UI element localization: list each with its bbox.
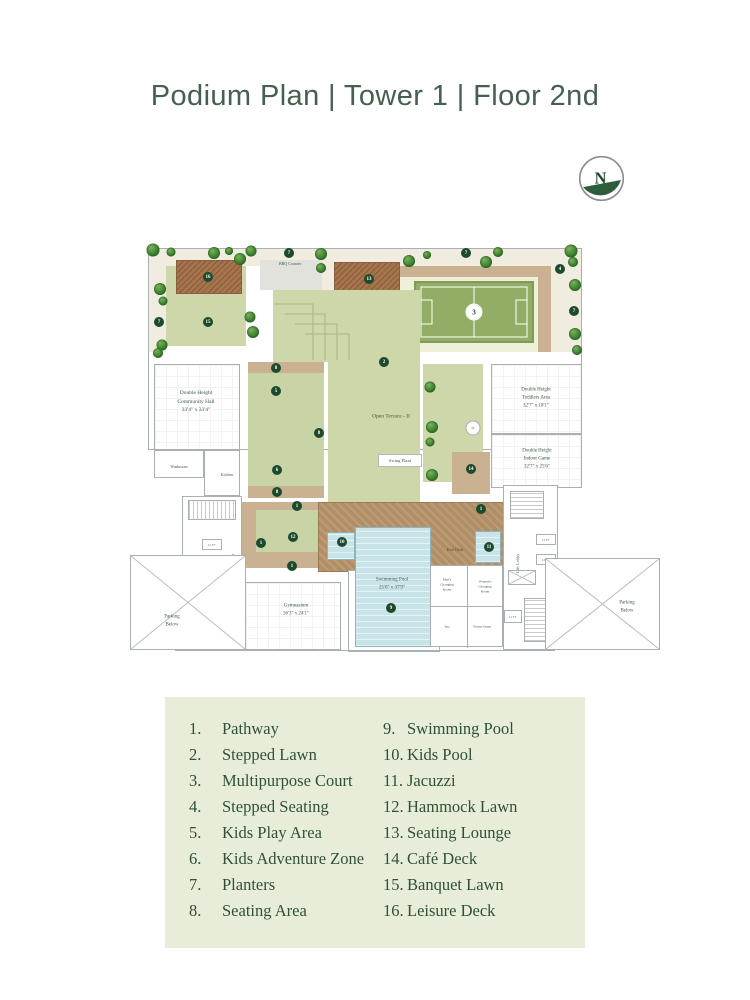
- legend-num: 8.: [189, 901, 213, 921]
- legend-item: 9.Swimming Pool: [383, 716, 517, 742]
- legend-label: Jacuzzi: [407, 771, 456, 791]
- tree-icon: [426, 469, 438, 481]
- tree-icon: [403, 255, 415, 267]
- tree-icon: [480, 256, 492, 268]
- label-open-terrace: Open Terrace - II: [372, 413, 410, 422]
- tree-icon: [569, 328, 581, 340]
- marker-jacuzzi: 11: [484, 542, 494, 552]
- label-indoor-game: Double Height Indoor Game 32'7" x 25'6": [522, 447, 552, 470]
- zone-seating-band-top: [248, 362, 324, 373]
- zone-stepped-seating-right: [538, 266, 551, 352]
- legend-item: 5.Kids Play Area: [189, 820, 364, 846]
- marker-seating-area-1: 8: [271, 363, 281, 373]
- legend-num: 9.: [383, 719, 404, 739]
- label-mens-changing: Men's Changing Room: [440, 578, 454, 593]
- parking-left: [130, 555, 246, 650]
- page: Podium Plan | Tower 1 | Floor 2nd N: [0, 0, 750, 1000]
- zone-stepped-seating-top: [400, 266, 551, 277]
- legend-num: 13.: [383, 823, 404, 843]
- legend-item: 3.Multipurpose Court: [189, 768, 364, 794]
- marker-kids-pool: 10: [337, 537, 347, 547]
- north-letter: N: [595, 169, 607, 188]
- building-bottom-wall: [175, 650, 555, 651]
- label-pool-deck: Pool Deck: [447, 547, 464, 553]
- marker-cafe-deck: 14: [466, 464, 476, 474]
- swing-icon: [466, 421, 481, 436]
- legend-label: Planters: [222, 875, 275, 895]
- tree-icon: [425, 382, 436, 393]
- legend-item: 13.Seating Lounge: [383, 820, 517, 846]
- marker-seating-area-3: 8: [272, 487, 282, 497]
- tree-icon: [565, 245, 578, 258]
- tree-icon: [159, 297, 168, 306]
- legend-num: 14.: [383, 849, 404, 869]
- label-gymnasium: Gymnasium 36'3" x 24'1": [283, 602, 309, 618]
- tree-icon: [423, 251, 431, 259]
- floor-plan: LIFT LIFT Lift Lobby LIFT LIFT LIFT Lift…: [130, 240, 662, 665]
- zone-seating-band-bottom: [248, 486, 324, 498]
- tree-icon: [572, 345, 582, 355]
- label-swimming-pool: Swimming Pool 25'0" x 37'9": [376, 576, 408, 592]
- tree-icon: [234, 253, 246, 265]
- legend-num: 10.: [383, 745, 404, 765]
- stepped-lawn-steps: [273, 290, 420, 362]
- legend-num: 15.: [383, 875, 404, 895]
- legend-num: 1.: [189, 719, 213, 739]
- lift-right-3: LIFT: [504, 610, 522, 623]
- tree-icon: [315, 248, 327, 260]
- legend-label: Seating Area: [222, 901, 307, 921]
- label-steam-sauna: Steam Sauna: [473, 625, 491, 630]
- swing-plaza-label: Swing Plaza: [378, 454, 422, 467]
- label-parking-right: Parking Below: [619, 599, 635, 615]
- marker-pathway-3: 1: [287, 561, 297, 571]
- legend-panel: 1.Pathway 2.Stepped Lawn 3.Multipurpose …: [165, 697, 585, 948]
- legend-item: 16.Leisure Deck: [383, 898, 517, 924]
- label-toddlers-area: Double Height Toddlers Area 32'7" x 18'1…: [521, 386, 551, 409]
- label-washroom: Washroom: [170, 464, 187, 470]
- marker-kids-adventure: 6: [272, 465, 282, 475]
- legend-num: 4.: [189, 797, 213, 817]
- legend-num: 11.: [383, 771, 404, 791]
- legend-num: 3.: [189, 771, 213, 791]
- legend-num: 6.: [189, 849, 213, 869]
- marker-banquet-lawn: 15: [203, 317, 213, 327]
- tree-icon: [147, 244, 160, 257]
- tree-icon: [426, 421, 438, 433]
- legend-label: Seating Lounge: [407, 823, 511, 843]
- legend-column-2: 9.Swimming Pool 10.Kids Pool 11.Jacuzzi …: [383, 716, 517, 924]
- tree-icon: [225, 247, 233, 255]
- tree-icon: [208, 247, 220, 259]
- tree-icon: [426, 438, 435, 447]
- tree-icon: [247, 326, 259, 338]
- legend-item: 7.Planters: [189, 872, 364, 898]
- tree-icon: [153, 348, 163, 358]
- tree-icon: [493, 247, 503, 257]
- legend-item: 15.Banquet Lawn: [383, 872, 517, 898]
- legend-item: 1.Pathway: [189, 716, 364, 742]
- legend-label: Leisure Deck: [407, 901, 495, 921]
- page-title: Podium Plan | Tower 1 | Floor 2nd: [0, 80, 750, 113]
- legend-label: Stepped Lawn: [222, 745, 317, 765]
- tree-icon: [316, 263, 326, 273]
- legend-label: Kids Pool: [407, 745, 473, 765]
- stairs-right-top: [510, 491, 544, 519]
- marker-seating-lounge: 13: [364, 274, 374, 284]
- stairs-left-top: [188, 500, 236, 520]
- label-bbq-counter: BBQ Counter: [279, 261, 301, 267]
- label-spa: Spa: [444, 625, 449, 630]
- marker-seating-area-2: 8: [314, 428, 324, 438]
- lift-left-1: LIFT: [202, 539, 222, 550]
- marker-planters-left: 7: [154, 317, 164, 327]
- legend-num: 7.: [189, 875, 213, 895]
- label-parking-left: Parking Below: [164, 613, 180, 629]
- marker-pathway-4: 1: [476, 504, 486, 514]
- legend-label: Stepped Seating: [222, 797, 329, 817]
- legend-label: Hammock Lawn: [407, 797, 517, 817]
- tree-icon: [245, 312, 256, 323]
- tree-icon: [167, 248, 176, 257]
- legend-item: 2.Stepped Lawn: [189, 742, 364, 768]
- zone-hammock-lawn: [256, 510, 318, 552]
- tree-icon: [154, 283, 166, 295]
- legend-label: Café Deck: [407, 849, 477, 869]
- legend-label: Banquet Lawn: [407, 875, 504, 895]
- legend-label: Kids Adventure Zone: [222, 849, 364, 869]
- zone-stepped-lawn-lower: [328, 360, 420, 512]
- legend-num: 12.: [383, 797, 404, 817]
- lift-right-1: LIFT: [536, 534, 556, 545]
- legend-item: 11.Jacuzzi: [383, 768, 517, 794]
- legend-item: 10.Kids Pool: [383, 742, 517, 768]
- marker-multipurpose-court: 3: [467, 305, 482, 320]
- marker-stepped-seating: 4: [555, 264, 565, 274]
- lift-lobby-right-label: Lift Lobby: [516, 533, 520, 573]
- legend-label: Kids Play Area: [222, 823, 322, 843]
- marker-hammock-lawn: 12: [288, 532, 298, 542]
- legend-num: 16.: [383, 901, 404, 921]
- marker-pathway-2: 1: [256, 538, 266, 548]
- marker-swimming-pool: 9: [386, 603, 396, 613]
- legend-label: Pathway: [222, 719, 279, 739]
- tree-icon: [569, 279, 581, 291]
- legend-num: 5.: [189, 823, 213, 843]
- marker-kids-play: 5: [271, 386, 281, 396]
- zone-kids-play: [248, 362, 324, 486]
- legend-column-1: 1.Pathway 2.Stepped Lawn 3.Multipurpose …: [189, 716, 364, 924]
- legend-item: 12.Hammock Lawn: [383, 794, 517, 820]
- marker-planters-top-2: 7: [461, 248, 471, 258]
- north-compass-icon: N: [578, 155, 625, 202]
- legend-item: 14.Café Deck: [383, 846, 517, 872]
- marker-planters-top-1: 7: [284, 248, 294, 258]
- legend-item: 4.Stepped Seating: [189, 794, 364, 820]
- marker-leisure-deck: 16: [203, 272, 213, 282]
- label-kitchen: Kitchen: [221, 472, 234, 478]
- legend-item: 8.Seating Area: [189, 898, 364, 924]
- service-box-right: [508, 570, 536, 585]
- marker-planters-right: 7: [569, 306, 579, 316]
- label-community-hall: Double Height Community Hall 33'4" x 33'…: [177, 389, 214, 415]
- parking-right: [545, 558, 660, 650]
- label-womens-changing: Women's Changing Room: [478, 580, 492, 595]
- tree-icon: [568, 257, 578, 267]
- legend-label: Multipurpose Court: [222, 771, 353, 791]
- marker-stepped-lawn: 2: [379, 357, 389, 367]
- legend-item: 6.Kids Adventure Zone: [189, 846, 364, 872]
- legend-num: 2.: [189, 745, 213, 765]
- tree-icon: [246, 246, 257, 257]
- marker-pathway-1: 1: [292, 501, 302, 511]
- legend-label: Swimming Pool: [407, 719, 514, 739]
